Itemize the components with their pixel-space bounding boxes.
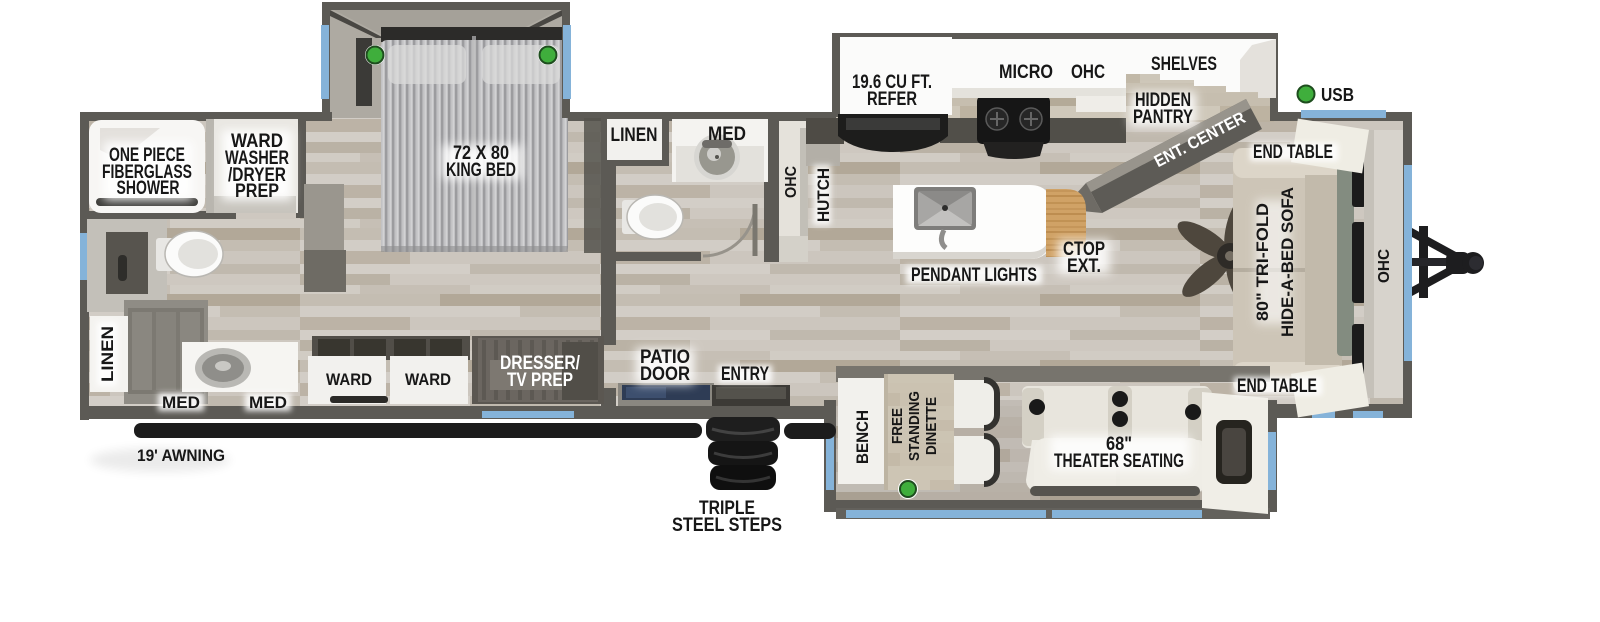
svg-text:MED: MED [708, 124, 746, 145]
svg-text:DINETTE: DINETTE [923, 397, 940, 455]
svg-text:REFER: REFER [867, 89, 917, 110]
svg-text:END TABLE: END TABLE [1237, 376, 1317, 397]
svg-text:WARD: WARD [405, 370, 451, 389]
svg-text:FREE: FREE [889, 408, 906, 444]
svg-text:BENCH: BENCH [853, 410, 872, 464]
svg-text:DOOR: DOOR [640, 364, 690, 385]
svg-text:EXT.: EXT. [1067, 256, 1101, 277]
svg-text:SHELVES: SHELVES [1151, 54, 1217, 75]
svg-text:SHOWER: SHOWER [117, 178, 180, 199]
svg-text:MICRO: MICRO [999, 62, 1053, 83]
svg-text:LINEN: LINEN [98, 326, 117, 382]
svg-text:END TABLE: END TABLE [1253, 142, 1333, 163]
svg-text:KING BED: KING BED [446, 160, 516, 181]
svg-text:PANTRY: PANTRY [1133, 107, 1193, 128]
svg-text:OHC: OHC [783, 166, 800, 198]
svg-text:THEATER SEATING: THEATER SEATING [1054, 451, 1184, 472]
svg-text:HUTCH: HUTCH [814, 168, 833, 222]
svg-text:HIDE-A-BED SOFA: HIDE-A-BED SOFA [1278, 187, 1297, 337]
svg-text:STANDING: STANDING [906, 391, 923, 461]
svg-text:MED: MED [249, 393, 287, 412]
svg-text:WARD: WARD [326, 370, 372, 389]
svg-text:MED: MED [162, 393, 200, 412]
svg-text:LINEN: LINEN [611, 125, 658, 146]
svg-text:PENDANT LIGHTS: PENDANT LIGHTS [911, 265, 1037, 286]
svg-text:PREP: PREP [235, 181, 279, 202]
svg-text:19' AWNING: 19' AWNING [137, 446, 225, 465]
svg-text:STEEL STEPS: STEEL STEPS [672, 515, 782, 536]
svg-text:OHC: OHC [1071, 62, 1105, 83]
svg-text:ENTRY: ENTRY [721, 364, 769, 385]
svg-text:80" TRI-FOLD: 80" TRI-FOLD [1253, 203, 1272, 321]
svg-text:TV PREP: TV PREP [507, 370, 573, 391]
svg-text:USB: USB [1321, 85, 1354, 105]
svg-text:OHC: OHC [1376, 249, 1393, 283]
